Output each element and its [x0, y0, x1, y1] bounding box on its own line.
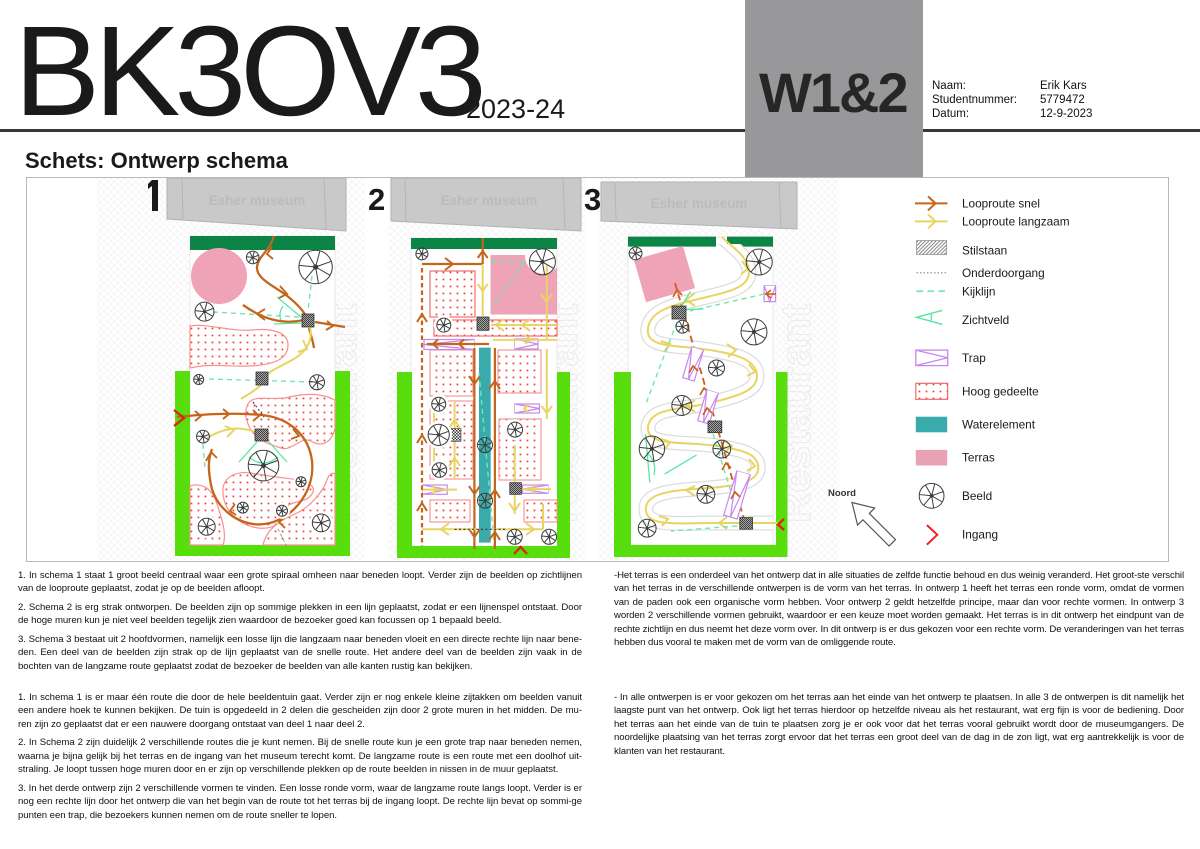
svg-text:Kijklijn: Kijklijn: [962, 285, 995, 299]
svg-text:Beeld: Beeld: [962, 489, 992, 503]
svg-text:Esher museum: Esher museum: [209, 193, 306, 208]
svg-text:Esher museum: Esher museum: [441, 193, 538, 208]
svg-text:Ingang: Ingang: [962, 528, 998, 542]
svg-text:Zichtveld: Zichtveld: [962, 313, 1009, 327]
svg-text:Esher museum: Esher museum: [651, 196, 748, 211]
svg-text:Looproute langzaam: Looproute langzaam: [962, 215, 1070, 229]
svg-text:Trap: Trap: [962, 351, 986, 365]
svg-text:Terras: Terras: [962, 451, 995, 465]
svg-text:Waterelement: Waterelement: [962, 418, 1036, 432]
svg-text:Stilstaan: Stilstaan: [962, 244, 1007, 258]
svg-text:Looproute snel: Looproute snel: [962, 197, 1040, 211]
svg-text:Onderdoorgang: Onderdoorgang: [962, 266, 1045, 280]
svg-text:3: 3: [584, 182, 601, 217]
svg-text:Noord: Noord: [828, 488, 856, 499]
svg-text:2: 2: [368, 182, 385, 217]
svg-text:Hoog gedeelte: Hoog gedeelte: [962, 385, 1039, 399]
